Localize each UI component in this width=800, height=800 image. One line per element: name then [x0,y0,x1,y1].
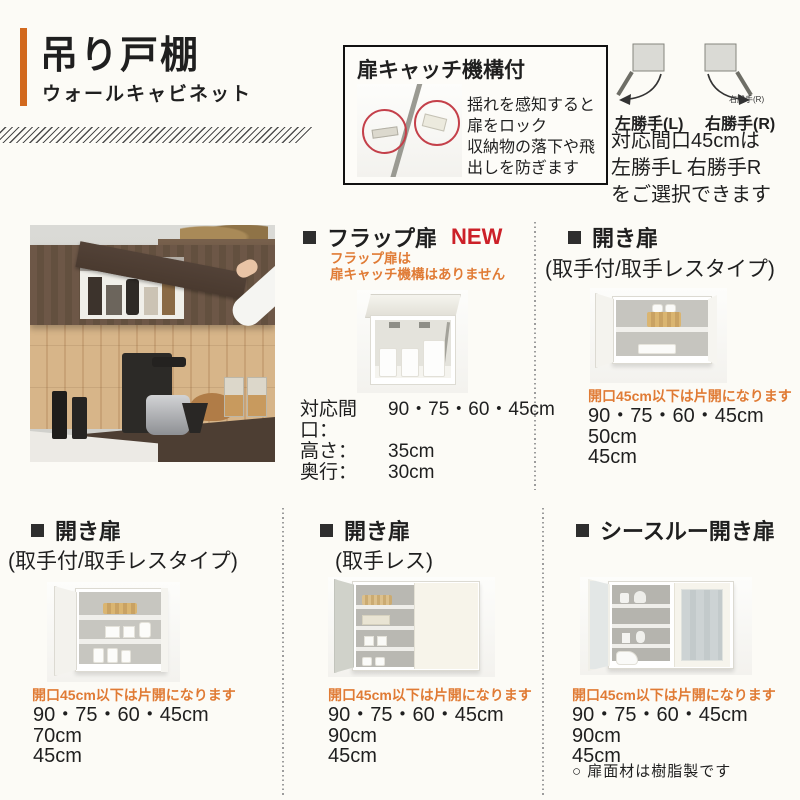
section-bullet-icon [31,524,44,537]
section-open-center-header: 開き扉 [320,514,410,546]
section-flap-header: フラップ扉 NEW [303,221,502,253]
canister [377,636,387,646]
coffee-machine-arm [152,357,186,367]
open-door-left [54,586,77,676]
canister [401,348,419,377]
hatch-stripe-band [0,127,313,143]
single-door-note: 開口45cm以下は片開になります [588,388,792,404]
jar [107,648,118,663]
pantry-item [106,285,122,315]
open-door-left [334,579,354,673]
open-cabinet-70-image [47,582,180,682]
spec-row: 奥行： 30cm [300,462,555,483]
shelf [356,626,414,630]
hinge [419,322,430,328]
single-door-note: 開口45cm以下は片開になります [328,687,532,703]
canister [123,626,135,638]
flap-warning-note: フラップ扉は 扉キャッチ機構はありません [330,251,505,283]
shelf [612,644,670,648]
open-door-right [161,588,168,672]
open-cabinet-90-image [328,577,495,677]
basket [103,603,137,614]
glassware [636,631,645,643]
plate [638,344,676,354]
left-hinge-diagram [610,42,672,111]
shelf [616,327,708,332]
canister [364,636,374,646]
open-cabinet-50-image [590,288,727,383]
hinge [389,322,400,328]
highlight-circle-icon [362,109,407,154]
open-door-left [588,579,610,671]
shelf [612,624,670,628]
section-bullet-icon [576,524,589,537]
cup [375,657,385,666]
section-bullet-icon [303,231,316,244]
shelf [356,647,414,651]
glassware [622,633,630,643]
pantry-item [144,287,158,315]
single-door-note: 開口45cm以下は片開になります [32,687,236,703]
canister [105,626,120,638]
closed-door-right [414,583,478,669]
canister [423,340,445,377]
canister [379,348,397,377]
dotted-divider [282,508,284,796]
section-subtitle: (取手レス) [335,545,433,575]
spec-list: 90・75・60・45cm 50cm 45cm [588,406,764,468]
section-title: 開き扉 [344,514,410,546]
single-door-note: 開口45cm以下は片開になります [572,687,776,703]
flap-cabinet-image [357,290,468,393]
section-bullet-icon [568,231,581,244]
shelf [79,639,163,644]
left-hinge-icon [610,42,672,106]
storage-jar [247,377,267,417]
section-subtitle: (取手付/取手レスタイプ) [8,545,238,575]
section-title: 開き扉 [592,221,658,253]
pantry-item [88,277,102,315]
catch-box-title: 扉キャッチ機構付 [357,54,525,84]
basket [647,312,681,327]
pantry-item [162,283,175,315]
section-open-top-header: 開き扉 [568,221,658,253]
canister [139,622,151,638]
spec-row: 高さ： 35cm [300,441,555,462]
section-subtitle: (取手付/取手レスタイプ) [545,253,775,283]
catch-box-description: 揺れを感知すると 扉をロック 収納物の落下や飛 出しを防ぎます [467,95,605,179]
section-bullet-icon [320,524,333,537]
storage-jar [224,377,244,417]
shelf [612,604,670,608]
hinge-selection-note: 対応間口45cmは 左勝手L 右勝手R をご選択できます [611,128,771,209]
section-open-left-header: 開き扉 [31,514,121,546]
section-title: シースルー開き扉 [600,514,775,546]
flap-spec-list: 対応間口： 90・75・60・45cm 高さ： 35cm 奥行： 30cm [300,399,555,483]
new-badge: NEW [451,224,502,250]
spec-row: 対応間口： 90・75・60・45cm [300,399,555,441]
section-see-through-header: シースルー開き扉 [576,514,775,546]
grinder [72,397,87,439]
right-hinge-small-label: 右勝手(R) [729,94,764,105]
dotted-divider [542,508,544,796]
highlight-circle-icon [414,100,460,146]
frosted-glass-panel [681,589,723,661]
page-title: 吊り戸棚 [40,24,200,79]
door-catch-feature-box: 扉キャッチ機構付 揺れを感知すると 扉をロック 収納物の落下や飛 出しを防ぎます [343,45,608,185]
box-item [362,615,390,625]
glassware [634,591,646,603]
kitchen-lifestyle-photo [30,225,275,462]
kettle [616,651,638,665]
cup [362,657,372,666]
catalog-page: 吊り戸棚 ウォールキャビネット 扉キャッチ機構付 揺れを感知すると 扉をロック … [0,0,800,800]
section-title: フラップ扉 [327,221,437,253]
spec-list: 90・75・60・45cm 90cm 45cm [572,705,748,767]
jar [121,650,131,663]
glassware [620,593,629,603]
basket [362,595,392,605]
catch-mechanism-image [357,84,462,177]
page-subtitle: ウォールキャビネット [42,79,252,106]
spec-list: 90・75・60・45cm 70cm 45cm [33,705,209,767]
open-door-left [595,293,614,368]
spec-list: 90・75・60・45cm 90cm 45cm [328,705,504,767]
accent-bar [20,28,27,106]
shelf [356,605,414,609]
see-through-cabinet-image [580,577,752,675]
shelf [79,615,163,620]
section-title: 開き扉 [55,514,121,546]
jar [93,648,104,663]
kettle [146,395,190,435]
pantry-item [126,279,139,315]
grinder [52,391,67,439]
material-note: ○ 扉面材は樹脂製です [572,760,731,781]
open-door-right [708,295,717,365]
